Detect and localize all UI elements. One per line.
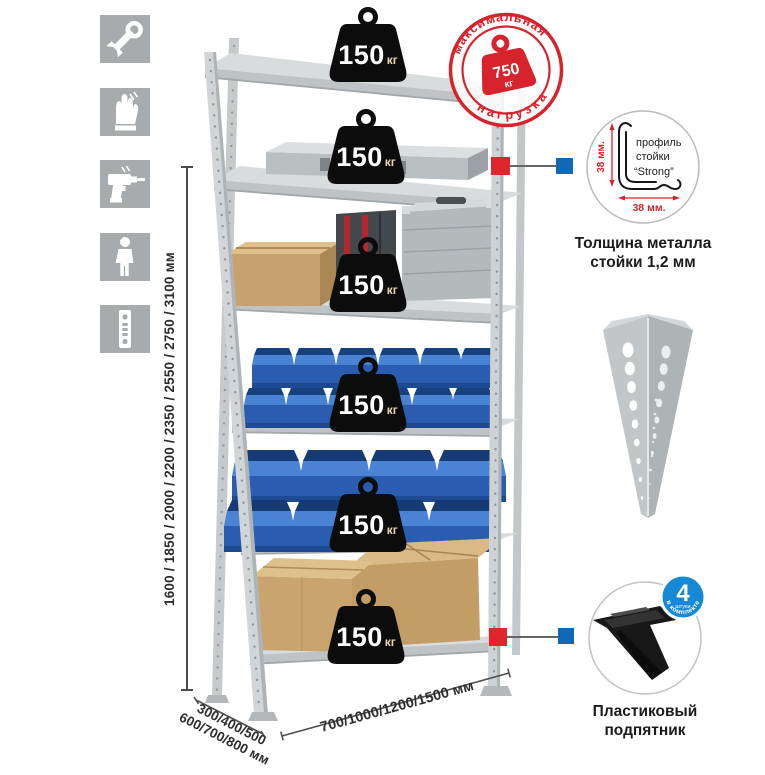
load-unit: кг <box>385 155 396 169</box>
badge-count: 4 <box>676 580 690 607</box>
profile-label-1: профиль <box>636 137 682 149</box>
shelf-load-badge: 150кг <box>320 6 416 84</box>
product-infographic: { "sidebar": { "icons": [ {"name": "wren… <box>0 0 765 765</box>
load-value: 150 <box>338 510 385 540</box>
caption-line: подпятник <box>567 721 723 740</box>
plastic-foot-caption: Пластиковый подпятник <box>567 702 723 741</box>
load-unit: кг <box>387 403 398 417</box>
load-value: 150 <box>336 622 383 652</box>
load-value: 150 <box>338 40 385 70</box>
shelf-load-badge: 150кг <box>320 236 416 314</box>
profile-dim-horizontal: 38 мм. <box>632 202 665 214</box>
profile-detail-circle: 38 мм. 38 мм. профиль стойки “Strong” <box>584 108 702 226</box>
shelf-load-badge: 150кг <box>320 356 416 434</box>
upright-profile-photo <box>603 314 693 518</box>
caption-line: Толщина металла <box>565 234 721 253</box>
height-dimension-line <box>186 166 188 691</box>
load-value: 150 <box>338 270 385 300</box>
load-unit: кг <box>385 635 396 649</box>
shelf-load-badge: 150кг <box>318 588 414 666</box>
callout-connector-bottom <box>489 628 574 646</box>
load-unit: кг <box>387 523 398 537</box>
profile-label-2: стойки <box>636 151 670 163</box>
load-value: 150 <box>336 142 383 172</box>
profile-dim-vertical: 38 мм. <box>596 141 607 173</box>
callout-connector-top <box>491 157 573 175</box>
load-unit: кг <box>387 283 398 297</box>
load-unit: кг <box>387 53 398 67</box>
height-dimension-label: 1600 / 1850 / 2000 / 2200 / 2350 / 2550 … <box>162 159 180 699</box>
profile-label-3: “Strong” <box>634 166 674 178</box>
load-value: 150 <box>338 390 385 420</box>
foot-plate <box>248 712 278 721</box>
caption-line: Пластиковый <box>567 702 723 721</box>
foot-plate <box>205 695 229 703</box>
aluminum-case-upright <box>402 197 500 301</box>
shelf-load-badge: 150кг <box>320 476 416 554</box>
kit-count-badge: 4 штуки в комплекте <box>658 572 710 624</box>
max-load-stamp: максимальная нагрузка 750 кг <box>440 3 572 135</box>
shelf-load-badge: 150кг <box>318 108 414 186</box>
caption-line: стойки 1,2 мм <box>565 253 721 272</box>
metal-thickness-caption: Толщина металла стойки 1,2 мм <box>565 234 721 273</box>
